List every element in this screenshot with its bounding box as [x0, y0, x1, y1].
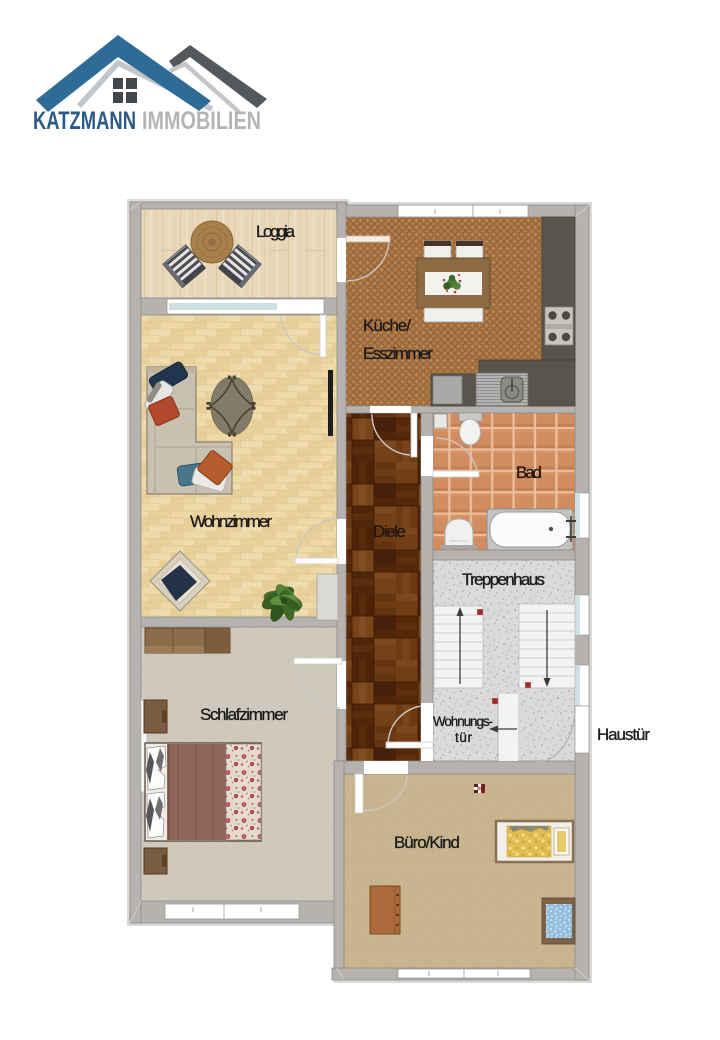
- svg-text:Wohnzimmer: Wohnzimmer: [190, 512, 272, 531]
- svg-text:KATZMANN: KATZMANN: [33, 107, 136, 135]
- svg-text:Schlafzimmer: Schlafzimmer: [200, 705, 288, 724]
- svg-text:tür: tür: [455, 730, 473, 745]
- svg-text:Büro/Kind: Büro/Kind: [394, 833, 460, 852]
- svg-text:Diele: Diele: [373, 522, 406, 541]
- svg-text:Esszimmer: Esszimmer: [363, 344, 433, 363]
- svg-text:IMMOBILIEN: IMMOBILIEN: [142, 107, 261, 135]
- svg-text:Treppenhaus: Treppenhaus: [462, 570, 545, 589]
- svg-text:Bad: Bad: [516, 463, 542, 482]
- svg-text:Loggia: Loggia: [256, 222, 296, 241]
- svg-text:Haustür: Haustür: [597, 725, 650, 744]
- svg-text:Wohnungs-: Wohnungs-: [433, 714, 493, 729]
- svg-text:Küche/: Küche/: [363, 316, 411, 335]
